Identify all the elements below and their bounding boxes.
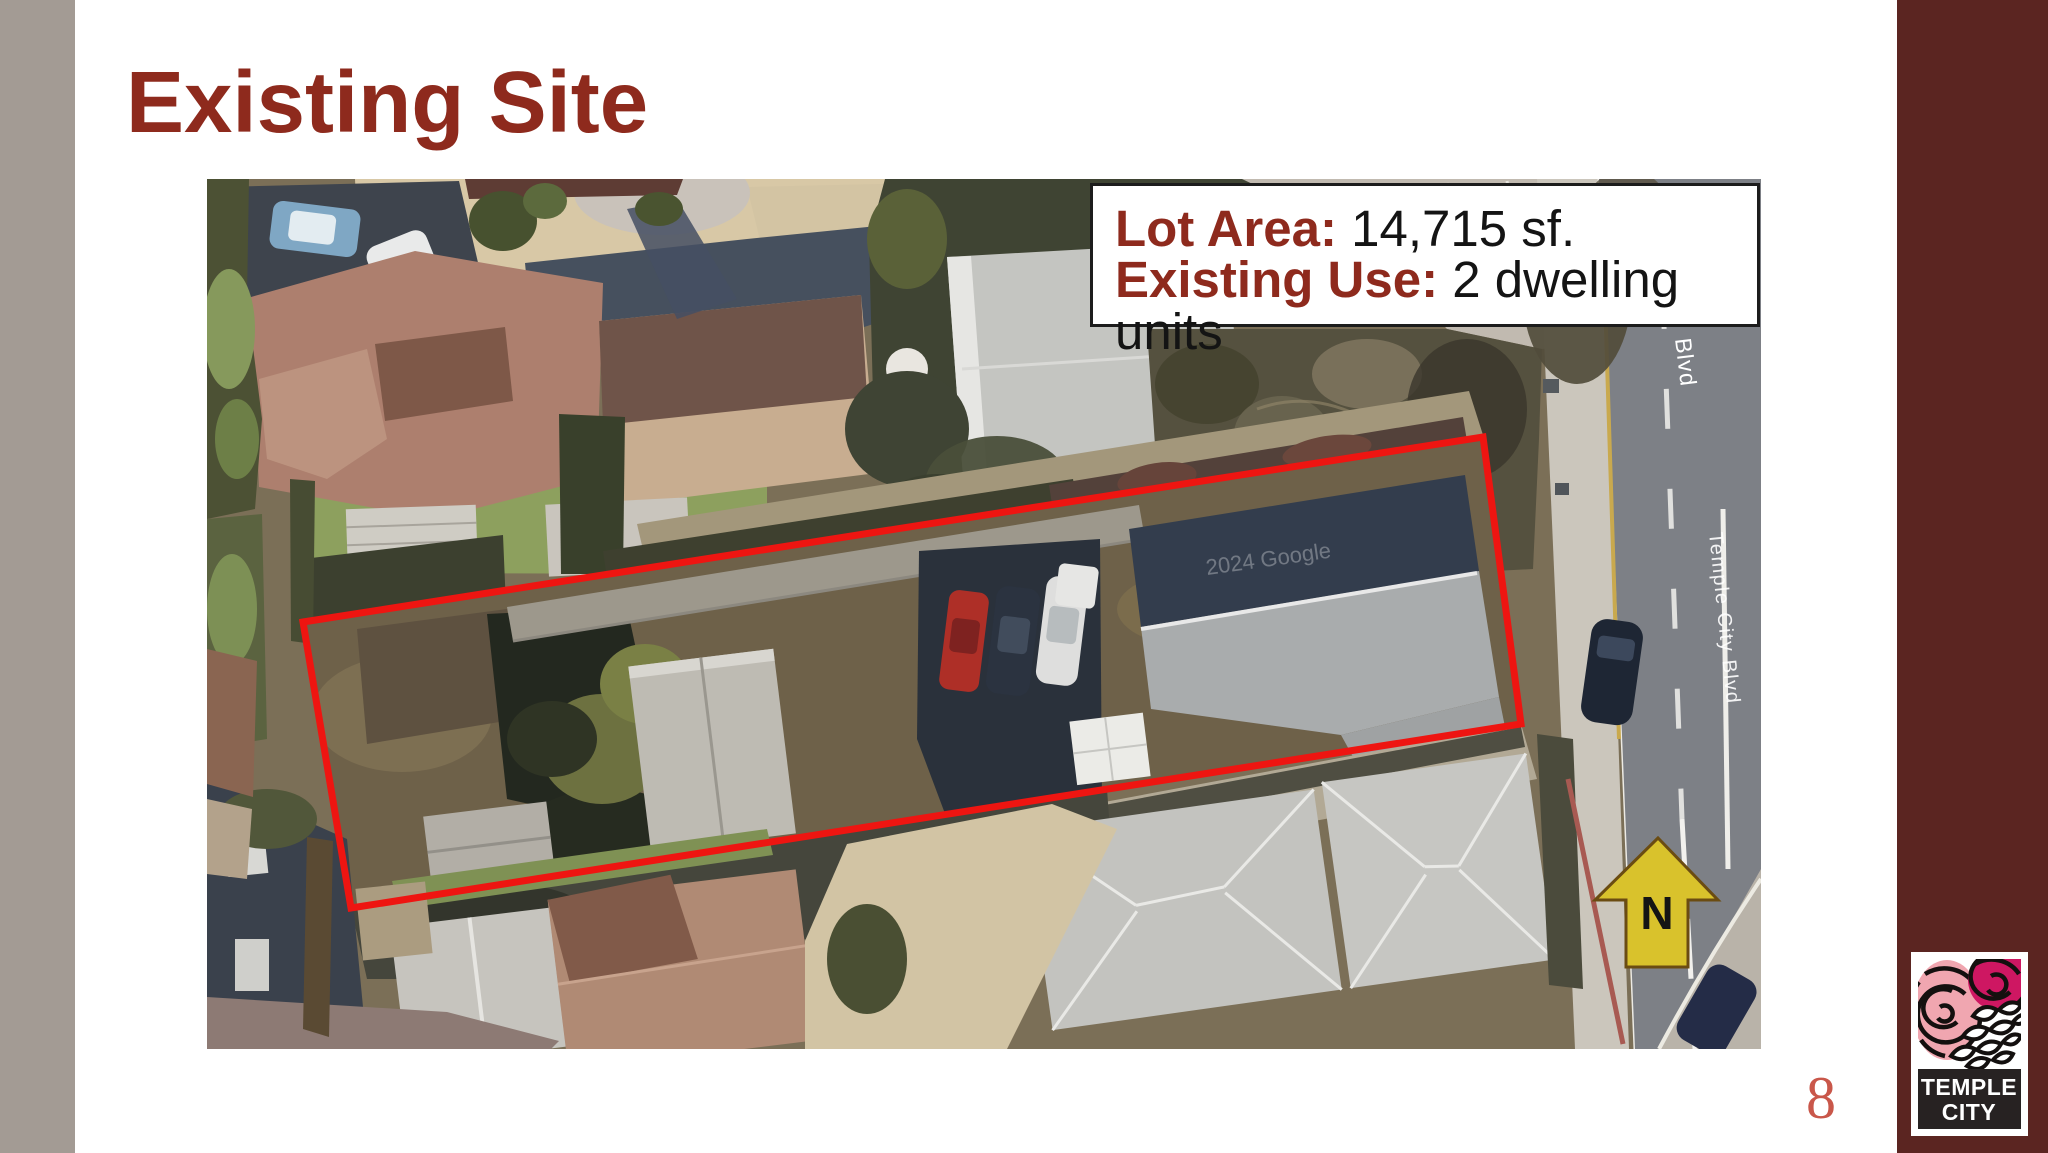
svg-text:CITY: CITY: [1942, 1099, 1996, 1125]
svg-text:TEMPLE: TEMPLE: [1921, 1074, 2017, 1100]
svg-text:N: N: [1640, 887, 1673, 939]
